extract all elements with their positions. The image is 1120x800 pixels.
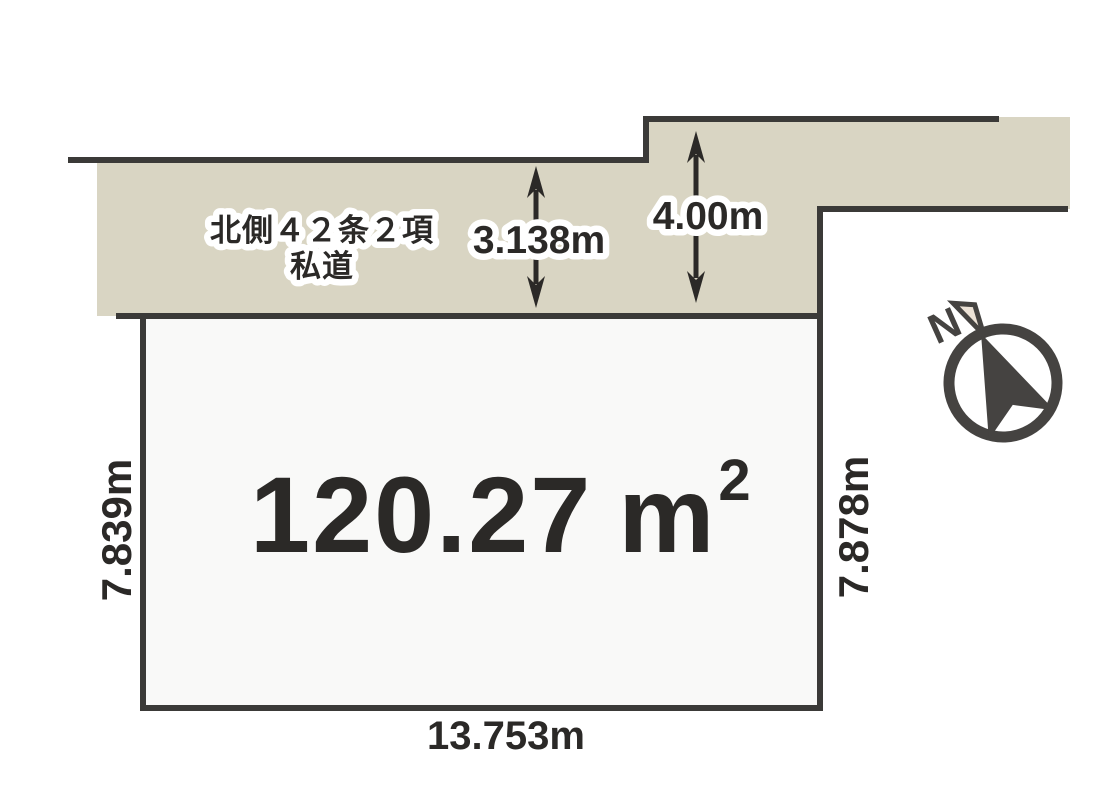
road-width-right-value: 4.00m xyxy=(653,195,764,238)
road-width-left-value: 3.138m xyxy=(473,219,605,262)
road-name-line2: 私道 xyxy=(290,249,354,284)
plot-area-exponent: 2 xyxy=(718,448,752,513)
land-plot-diagram: 北側４２条２項 私道 3.138m 4.00m 120.27m2 7.839m … xyxy=(0,0,1120,800)
plot-area-number: 120.27 xyxy=(250,454,592,575)
land-plot-diagram-page: 北側４２条２項 私道 3.138m 4.00m 120.27m2 7.839m … xyxy=(0,0,1120,800)
road-name-line1: 北側４２条２項 xyxy=(210,213,434,248)
plot-left-dimension: 7.839m xyxy=(93,459,140,601)
plot-bottom-dimension: 13.753m xyxy=(427,714,585,758)
plot-right-dimension: 7.878m xyxy=(830,456,877,598)
plot-area-unit: m xyxy=(618,454,716,575)
plot-area-value: 120.27m2 xyxy=(250,448,753,575)
north-compass: N xyxy=(913,270,1074,455)
